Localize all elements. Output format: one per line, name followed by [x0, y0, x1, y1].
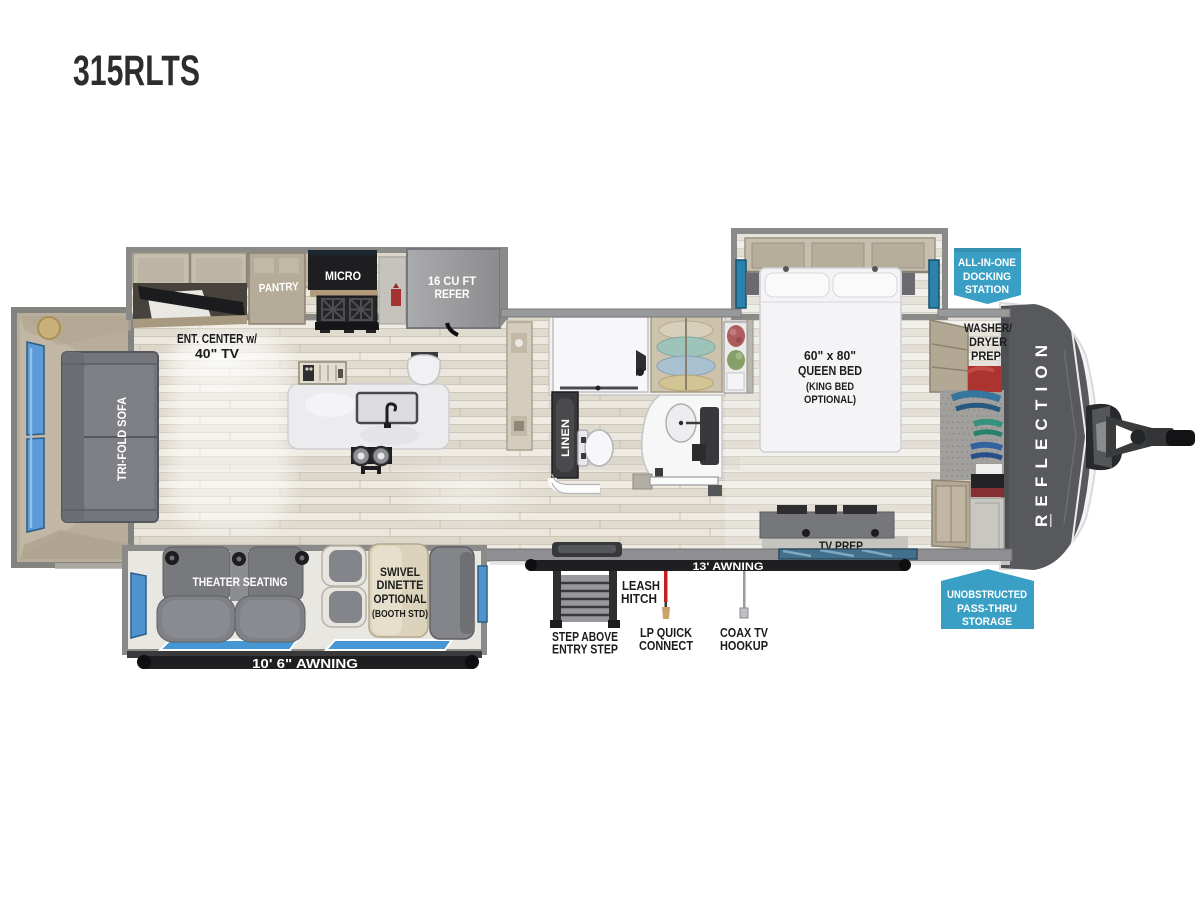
svg-text:(KING BED: (KING BED — [806, 381, 854, 393]
svg-text:DRYER: DRYER — [969, 335, 1007, 349]
svg-text:16 CU FT: 16 CU FT — [428, 276, 476, 288]
svg-text:PASS-THRU: PASS-THRU — [957, 603, 1017, 615]
svg-text:COAX TV: COAX TV — [720, 626, 769, 640]
svg-text:60" x 80": 60" x 80" — [804, 349, 856, 363]
svg-text:PREP: PREP — [971, 349, 1001, 363]
svg-text:40" TV: 40" TV — [195, 346, 239, 361]
svg-text:LP QUICK: LP QUICK — [640, 626, 692, 640]
svg-text:PANTRY: PANTRY — [259, 281, 300, 295]
svg-text:LINEN: LINEN — [560, 419, 572, 457]
svg-text:TRI-FOLD SOFA: TRI-FOLD SOFA — [117, 397, 129, 481]
svg-text:DOCKING: DOCKING — [963, 271, 1011, 283]
svg-text:10' 6" AWNING: 10' 6" AWNING — [252, 657, 358, 671]
svg-text:ENTRY STEP: ENTRY STEP — [552, 643, 618, 657]
svg-text:STORAGE: STORAGE — [962, 616, 1012, 628]
svg-text:HOOKUP: HOOKUP — [720, 639, 768, 653]
svg-text:(BOOTH STD): (BOOTH STD) — [372, 609, 428, 620]
svg-text:ALL-IN-ONE: ALL-IN-ONE — [958, 257, 1016, 269]
svg-text:LEASH: LEASH — [622, 579, 660, 593]
svg-text:UNOBSTRUCTED: UNOBSTRUCTED — [947, 589, 1027, 601]
svg-text:ENT. CENTER w/: ENT. CENTER w/ — [177, 331, 257, 346]
svg-text:HITCH: HITCH — [621, 592, 657, 606]
svg-text:OPTIONAL: OPTIONAL — [374, 594, 427, 606]
svg-text:13' AWNING: 13' AWNING — [693, 561, 764, 573]
svg-text:DINETTE: DINETTE — [377, 580, 424, 592]
svg-text:SWIVEL: SWIVEL — [380, 567, 420, 579]
svg-text:WASHER/: WASHER/ — [964, 321, 1013, 335]
svg-text:315RLTS: 315RLTS — [73, 47, 200, 95]
svg-text:CONNECT: CONNECT — [639, 639, 693, 653]
svg-text:MICRO: MICRO — [325, 271, 361, 283]
svg-text:STATION: STATION — [965, 284, 1009, 296]
svg-text:REFER: REFER — [435, 289, 471, 301]
svg-text:OPTIONAL): OPTIONAL) — [804, 394, 856, 406]
svg-text:QUEEN BED: QUEEN BED — [798, 364, 862, 378]
svg-text:THEATER SEATING: THEATER SEATING — [193, 575, 288, 589]
